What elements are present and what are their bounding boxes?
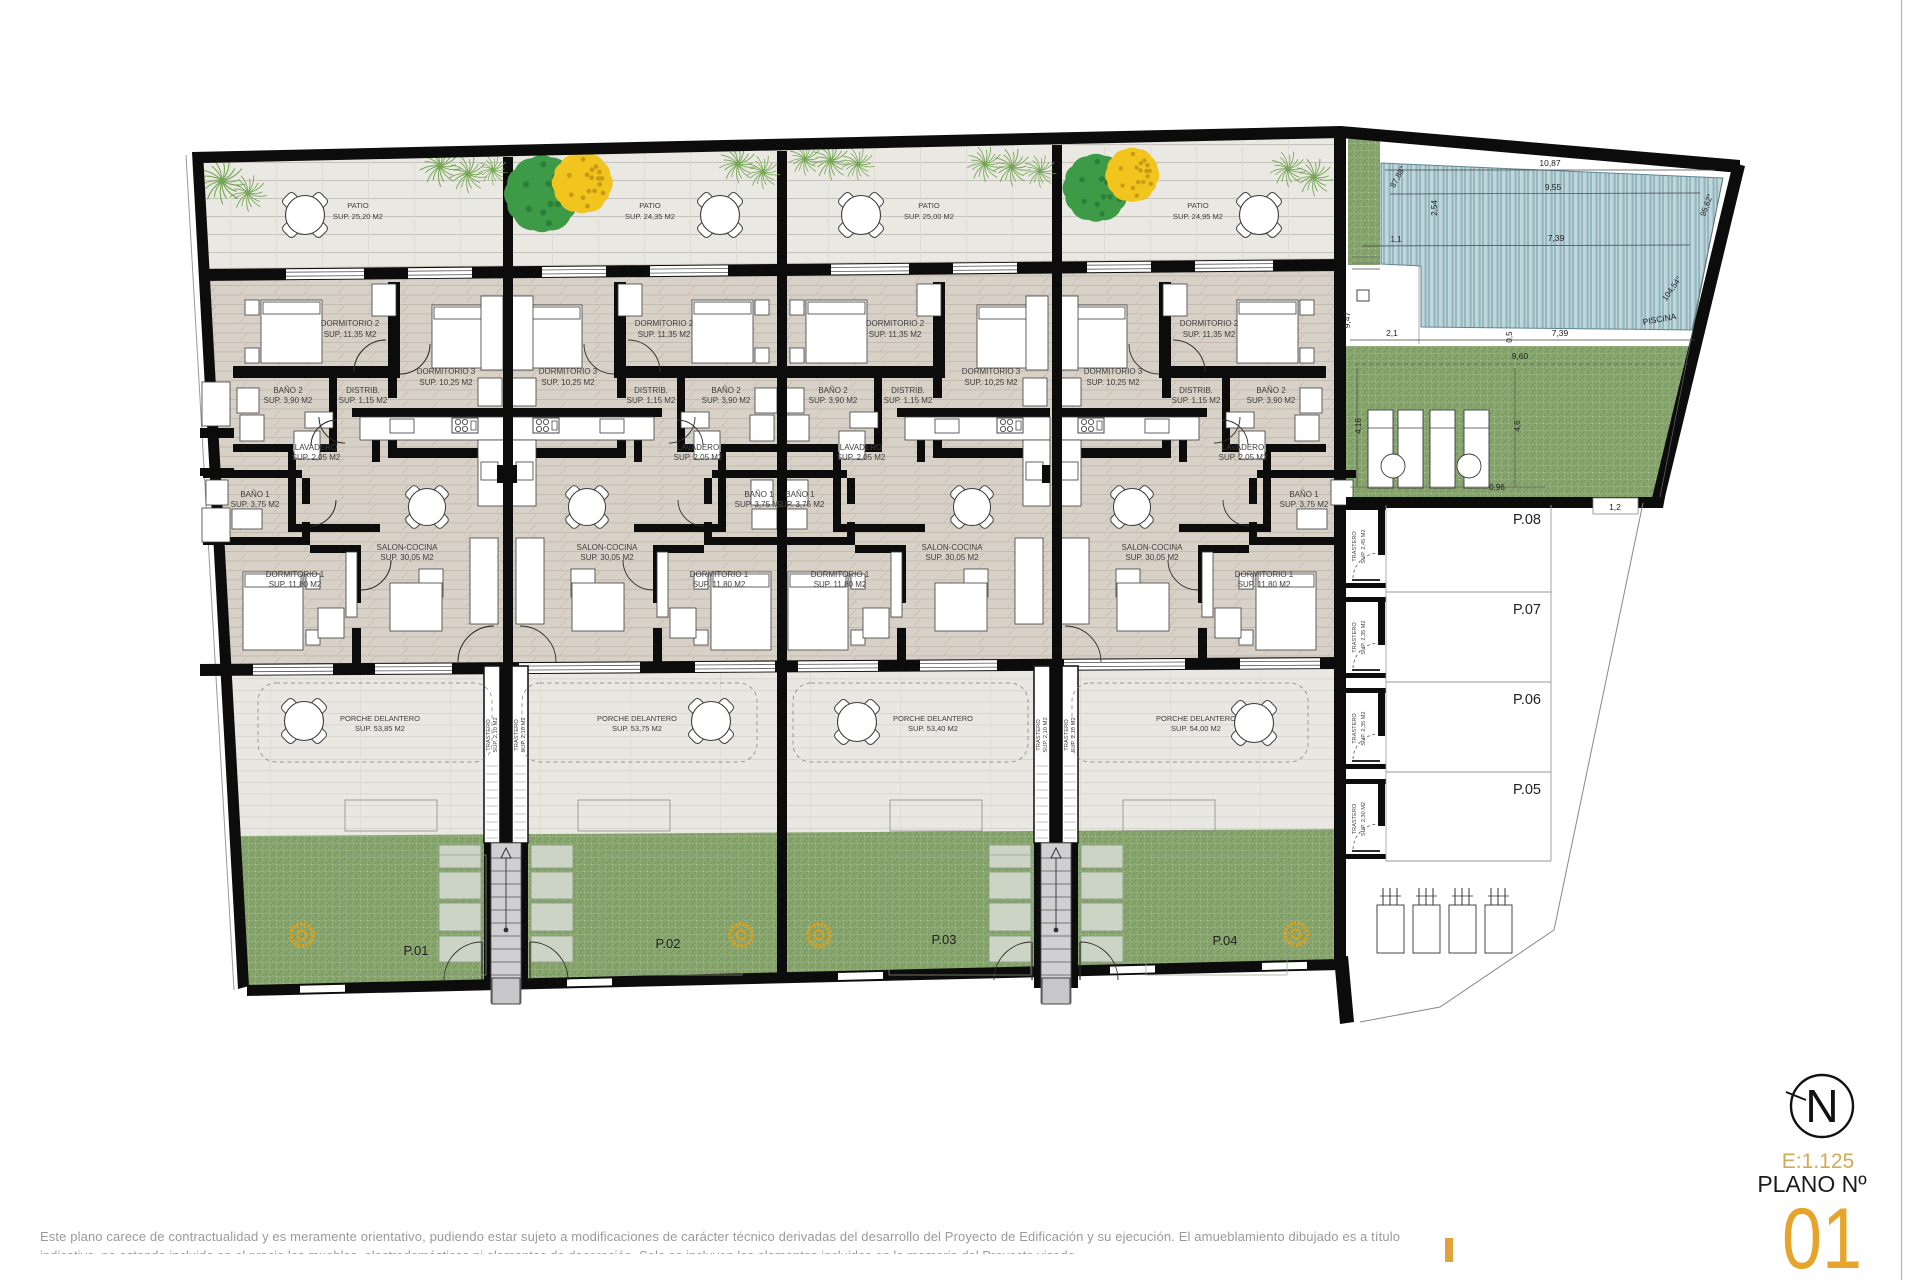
svg-text:TRASTERO: TRASTERO	[1352, 713, 1358, 744]
svg-text:P.05: P.05	[1513, 782, 1541, 798]
svg-text:P.08: P.08	[1513, 512, 1541, 528]
svg-text:SUP. 3,90 M2: SUP. 3,90 M2	[1247, 396, 1296, 405]
svg-text:DORMITORIO 2: DORMITORIO 2	[866, 319, 925, 328]
svg-text:SUP. 3,75 M2: SUP. 3,75 M2	[231, 500, 280, 509]
svg-text:P.03: P.03	[931, 932, 956, 947]
svg-text:TRASTERO: TRASTERO	[1064, 719, 1070, 751]
svg-text:LAVADERO: LAVADERO	[677, 443, 719, 452]
svg-text:SUP. 3,75 M2: SUP. 3,75 M2	[776, 500, 825, 509]
svg-text:SUP. 11,35 M2: SUP. 11,35 M2	[1183, 330, 1236, 339]
svg-text:SUP. 2,45 M2: SUP. 2,45 M2	[1361, 529, 1367, 563]
svg-text:PATIO: PATIO	[1187, 201, 1209, 210]
svg-text:9,55: 9,55	[1545, 182, 1562, 192]
svg-text:SUP. 2,30 M2: SUP. 2,30 M2	[1361, 802, 1367, 836]
svg-text:SUP. 11,80 M2: SUP. 11,80 M2	[814, 580, 867, 589]
svg-text:BAÑO 2: BAÑO 2	[711, 386, 741, 395]
svg-text:SUP. 2,05 M2: SUP. 2,05 M2	[1219, 453, 1268, 462]
svg-text:BAÑO 1: BAÑO 1	[1289, 490, 1319, 499]
svg-text:DORMITORIO 3: DORMITORIO 3	[417, 367, 476, 376]
svg-text:SUP. 2,35 M2: SUP. 2,35 M2	[1361, 620, 1367, 654]
svg-text:SUP. 3,90 M2: SUP. 3,90 M2	[702, 396, 751, 405]
svg-text:TRASTERO: TRASTERO	[1352, 622, 1358, 653]
svg-text:BAÑO 2: BAÑO 2	[273, 386, 303, 395]
svg-text:SUP. 2,10 M2: SUP. 2,10 M2	[493, 717, 499, 752]
svg-text:SUP. 3,90 M2: SUP. 3,90 M2	[264, 396, 313, 405]
svg-text:SUP. 25,00 M2: SUP. 25,00 M2	[904, 212, 954, 221]
svg-text:P.06: P.06	[1513, 692, 1541, 708]
svg-text:PORCHE DELANTERO: PORCHE DELANTERO	[893, 714, 973, 723]
svg-text:N: N	[1805, 1080, 1838, 1132]
svg-text:SUP. 1,15 M2: SUP. 1,15 M2	[884, 396, 933, 405]
svg-text:SUP. 30,05 M2: SUP. 30,05 M2	[1125, 553, 1179, 562]
svg-text:DORMITORIO 3: DORMITORIO 3	[962, 367, 1021, 376]
svg-text:TRASTERO: TRASTERO	[1036, 719, 1042, 751]
svg-text:DISTRIB.: DISTRIB.	[346, 386, 380, 395]
svg-text:SUP. 10,25 M2: SUP. 10,25 M2	[419, 378, 473, 387]
svg-text:SUP. 10,25 M2: SUP. 10,25 M2	[1086, 378, 1140, 387]
svg-text:SUP. 10,25 M2: SUP. 10,25 M2	[541, 378, 595, 387]
svg-text:SUP. 11,35 M2: SUP. 11,35 M2	[869, 330, 922, 339]
svg-text:0,96: 0,96	[1489, 483, 1505, 492]
svg-text:DORMITORIO 1: DORMITORIO 1	[811, 570, 870, 579]
svg-text:SUP. 1,15 M2: SUP. 1,15 M2	[339, 396, 388, 405]
svg-text:Este plano carece de contractu: Este plano carece de contractualidad y e…	[40, 1229, 1400, 1244]
svg-text:DORMITORIO 2: DORMITORIO 2	[635, 319, 694, 328]
svg-text:SUP. 3,75 M2: SUP. 3,75 M2	[1280, 500, 1329, 509]
svg-text:PATIO: PATIO	[918, 201, 940, 210]
svg-text:SUP. 54,00 M2: SUP. 54,00 M2	[1171, 724, 1221, 733]
svg-text:DORMITORIO 3: DORMITORIO 3	[1084, 367, 1143, 376]
svg-text:10,87: 10,87	[1539, 158, 1561, 168]
svg-text:P.02: P.02	[655, 936, 680, 951]
svg-text:P.07: P.07	[1513, 602, 1541, 618]
svg-text:PATIO: PATIO	[639, 201, 661, 210]
svg-text:BAÑO 1: BAÑO 1	[744, 490, 774, 499]
svg-text:SUP. 53,75 M2: SUP. 53,75 M2	[612, 724, 662, 733]
svg-text:DISTRIB.: DISTRIB.	[1179, 386, 1213, 395]
svg-text:DISTRIB.: DISTRIB.	[891, 386, 925, 395]
svg-text:P.04: P.04	[1212, 933, 1237, 948]
svg-text:SUP. 11,35 M2: SUP. 11,35 M2	[638, 330, 691, 339]
svg-text:7,39: 7,39	[1552, 328, 1569, 338]
svg-text:1,1: 1,1	[1390, 235, 1402, 244]
svg-text:SUP. 2,05 M2: SUP. 2,05 M2	[674, 453, 723, 462]
svg-text:2,54: 2,54	[1430, 200, 1439, 216]
svg-text:2,1: 2,1	[1386, 328, 1398, 338]
svg-text:SUP. 30,05 M2: SUP. 30,05 M2	[380, 553, 434, 562]
svg-text:SUP. 25,20 M2: SUP. 25,20 M2	[333, 212, 383, 221]
svg-text:TRASTERO: TRASTERO	[1352, 531, 1358, 562]
svg-text:SUP. 3,90 M2: SUP. 3,90 M2	[809, 396, 858, 405]
svg-text:4,6: 4,6	[1513, 420, 1522, 432]
svg-text:7,39: 7,39	[1548, 233, 1565, 243]
svg-text:SUP. 11,80 M2: SUP. 11,80 M2	[693, 580, 746, 589]
svg-text:BAÑO 2: BAÑO 2	[818, 386, 848, 395]
svg-text:SUP. 30,05 M2: SUP. 30,05 M2	[580, 553, 634, 562]
svg-text:LAVADERO: LAVADERO	[295, 443, 337, 452]
svg-text:BAÑO 1: BAÑO 1	[240, 490, 270, 499]
svg-text:1,2: 1,2	[1609, 502, 1621, 512]
svg-text:SUP. 30,05 M2: SUP. 30,05 M2	[925, 553, 979, 562]
svg-text:SUP. 24,35 M2: SUP. 24,35 M2	[625, 212, 675, 221]
svg-text:SUP. 1,15 M2: SUP. 1,15 M2	[627, 396, 676, 405]
svg-text:DORMITORIO 2: DORMITORIO 2	[1180, 319, 1239, 328]
svg-text:9,60: 9,60	[1512, 351, 1529, 361]
svg-text:SALON-COCINA: SALON-COCINA	[577, 543, 639, 552]
svg-text:SALON-COCINA: SALON-COCINA	[377, 543, 439, 552]
svg-text:SUP. 53,85 M2: SUP. 53,85 M2	[355, 724, 405, 733]
svg-text:0,5: 0,5	[1505, 331, 1514, 343]
svg-text:SUP. 11,80 M2: SUP. 11,80 M2	[269, 580, 322, 589]
svg-text:SUP. 53,40 M2: SUP. 53,40 M2	[908, 724, 958, 733]
svg-text:LAVADERO: LAVADERO	[840, 443, 882, 452]
svg-text:TRASTERO: TRASTERO	[486, 719, 492, 751]
svg-text:SUP. 11,80 M2: SUP. 11,80 M2	[1238, 580, 1291, 589]
svg-text:SALON-COCINA: SALON-COCINA	[1122, 543, 1184, 552]
svg-text:DORMITORIO 1: DORMITORIO 1	[266, 570, 325, 579]
svg-text:SUP. 2,05 M2: SUP. 2,05 M2	[292, 453, 341, 462]
svg-text:DORMITORIO 3: DORMITORIO 3	[539, 367, 598, 376]
svg-text:01: 01	[1782, 1191, 1862, 1280]
svg-text:SUP. 1,15 M2: SUP. 1,15 M2	[1172, 396, 1221, 405]
svg-text:9,47: 9,47	[1342, 311, 1352, 328]
svg-text:DORMITORIO 1: DORMITORIO 1	[690, 570, 749, 579]
svg-text:TRASTERO: TRASTERO	[514, 719, 520, 751]
svg-text:PORCHE DELANTERO: PORCHE DELANTERO	[1156, 714, 1236, 723]
svg-text:PORCHE DELANTERO: PORCHE DELANTERO	[597, 714, 677, 723]
svg-text:PATIO: PATIO	[347, 201, 369, 210]
svg-text:LAVADERO: LAVADERO	[1222, 443, 1264, 452]
svg-text:E:1.125: E:1.125	[1782, 1150, 1854, 1173]
svg-text:SUP. 2,05 M2: SUP. 2,05 M2	[837, 453, 886, 462]
svg-text:TRASTERO: TRASTERO	[1352, 803, 1358, 834]
svg-text:4,16: 4,16	[1354, 418, 1363, 434]
svg-text:SUP. 10,25 M2: SUP. 10,25 M2	[964, 378, 1018, 387]
svg-text:DISTRIB.: DISTRIB.	[634, 386, 668, 395]
svg-text:SUP. 2,10 M2: SUP. 2,10 M2	[1043, 717, 1049, 752]
svg-text:BAÑO 1: BAÑO 1	[785, 490, 815, 499]
svg-text:PORCHE DELANTERO: PORCHE DELANTERO	[340, 714, 420, 723]
svg-text:SALON-COCINA: SALON-COCINA	[922, 543, 984, 552]
svg-text:BAÑO 2: BAÑO 2	[1256, 386, 1286, 395]
svg-text:P.01: P.01	[403, 943, 428, 958]
svg-text:DORMITORIO 2: DORMITORIO 2	[321, 319, 380, 328]
svg-text:SUP. 24,95 M2: SUP. 24,95 M2	[1173, 212, 1223, 221]
svg-text:SUP. 11,35 M2: SUP. 11,35 M2	[324, 330, 377, 339]
svg-text:DORMITORIO 1: DORMITORIO 1	[1235, 570, 1294, 579]
svg-text:SUP. 2,35 M2: SUP. 2,35 M2	[1361, 711, 1367, 745]
